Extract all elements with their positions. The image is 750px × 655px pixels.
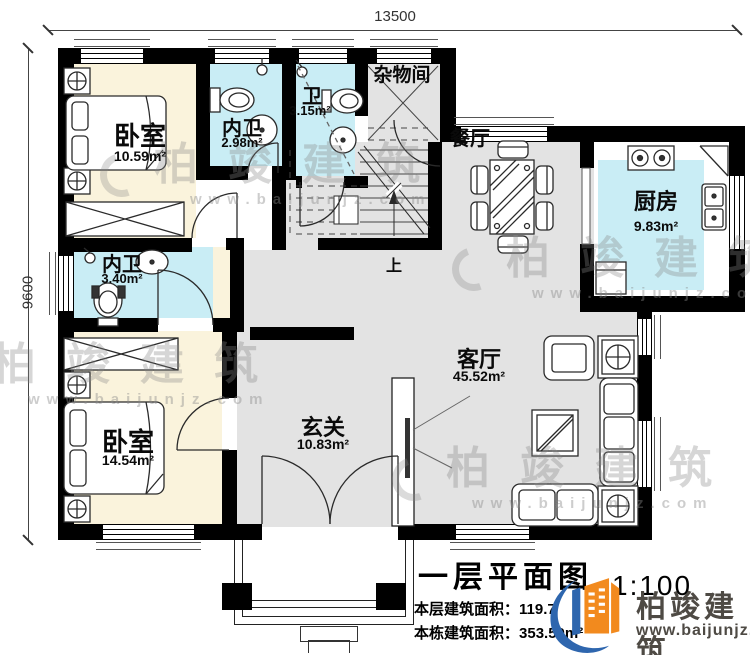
toilet — [210, 88, 254, 112]
stairs-up-label: 上 — [382, 252, 406, 276]
room-area-bath: 3.15m² — [280, 103, 340, 118]
brand-logo-icon — [540, 574, 635, 654]
building-area-label: 本栋建筑面积： — [414, 625, 519, 642]
watermark-text: 柏竣建筑 — [506, 234, 750, 283]
dimension-width-label: 13500 — [355, 8, 435, 25]
corner-shelf — [700, 146, 728, 176]
watermark-text: 柏竣建筑 — [446, 444, 742, 493]
room-area-inner-bath1: 2.98m² — [206, 135, 278, 150]
porch-column — [222, 583, 252, 610]
porch-column — [376, 583, 406, 610]
floor-area-label: 本层建筑面积： — [414, 601, 519, 618]
porch-step — [250, 600, 396, 601]
dimension-height-label: 9600 — [20, 263, 37, 323]
watermark-url: www.baijunjz.com — [190, 191, 450, 208]
watermark: 柏竣建筑 www.baijunjz.com — [452, 222, 750, 302]
armchair — [544, 336, 594, 380]
porch-step — [250, 607, 396, 608]
room-label-dining: 餐厅 — [440, 122, 500, 151]
shower-head-icon — [257, 58, 267, 75]
room-area-bedroom2: 14.54m² — [84, 452, 172, 468]
watermark-url: www.baijunjz.com — [472, 495, 742, 512]
stove — [628, 146, 674, 170]
watermark-logo-icon — [445, 240, 503, 298]
watermark-url: www.baijunjz.com — [532, 285, 750, 302]
room-area-inner-bath2: 3.40m² — [84, 271, 160, 286]
watermark: 柏竣建筑 www.baijunjz.com — [0, 328, 288, 408]
dimension-line-top — [48, 30, 737, 31]
brand-name: 柏竣建筑 — [636, 582, 750, 655]
room-label-storage: 杂物间 — [360, 60, 444, 87]
watermark-url: www.baijunjz.com — [28, 391, 288, 408]
floor-area-line: 本层建筑面积：119.7 — [414, 598, 556, 619]
brand-url: www.baijunjz.com — [636, 622, 750, 640]
porch-lower-step — [308, 640, 350, 653]
watermark: 柏竣建筑 www.baijunjz.com — [392, 432, 742, 512]
room-area-bedroom1: 10.59m² — [100, 148, 180, 164]
toilet — [92, 283, 125, 326]
room-area-foyer: 10.83m² — [284, 436, 362, 452]
brand-logo: 柏竣建筑 www.baijunjz.com — [540, 574, 750, 654]
watermark-logo-icon — [385, 450, 443, 508]
room-area-living: 45.52m² — [440, 368, 518, 384]
room-area-kitchen: 9.83m² — [622, 218, 690, 234]
room-label-kitchen: 厨房 — [622, 184, 690, 216]
floor-plan: 13500 9600 柏竣建筑 www.baijunjz.com 柏竣建筑 ww… — [0, 0, 750, 655]
shower-head-icon — [296, 60, 307, 77]
watermark-text: 柏竣建筑 — [0, 340, 288, 389]
watermark-text: 柏竣建筑 — [154, 140, 450, 189]
